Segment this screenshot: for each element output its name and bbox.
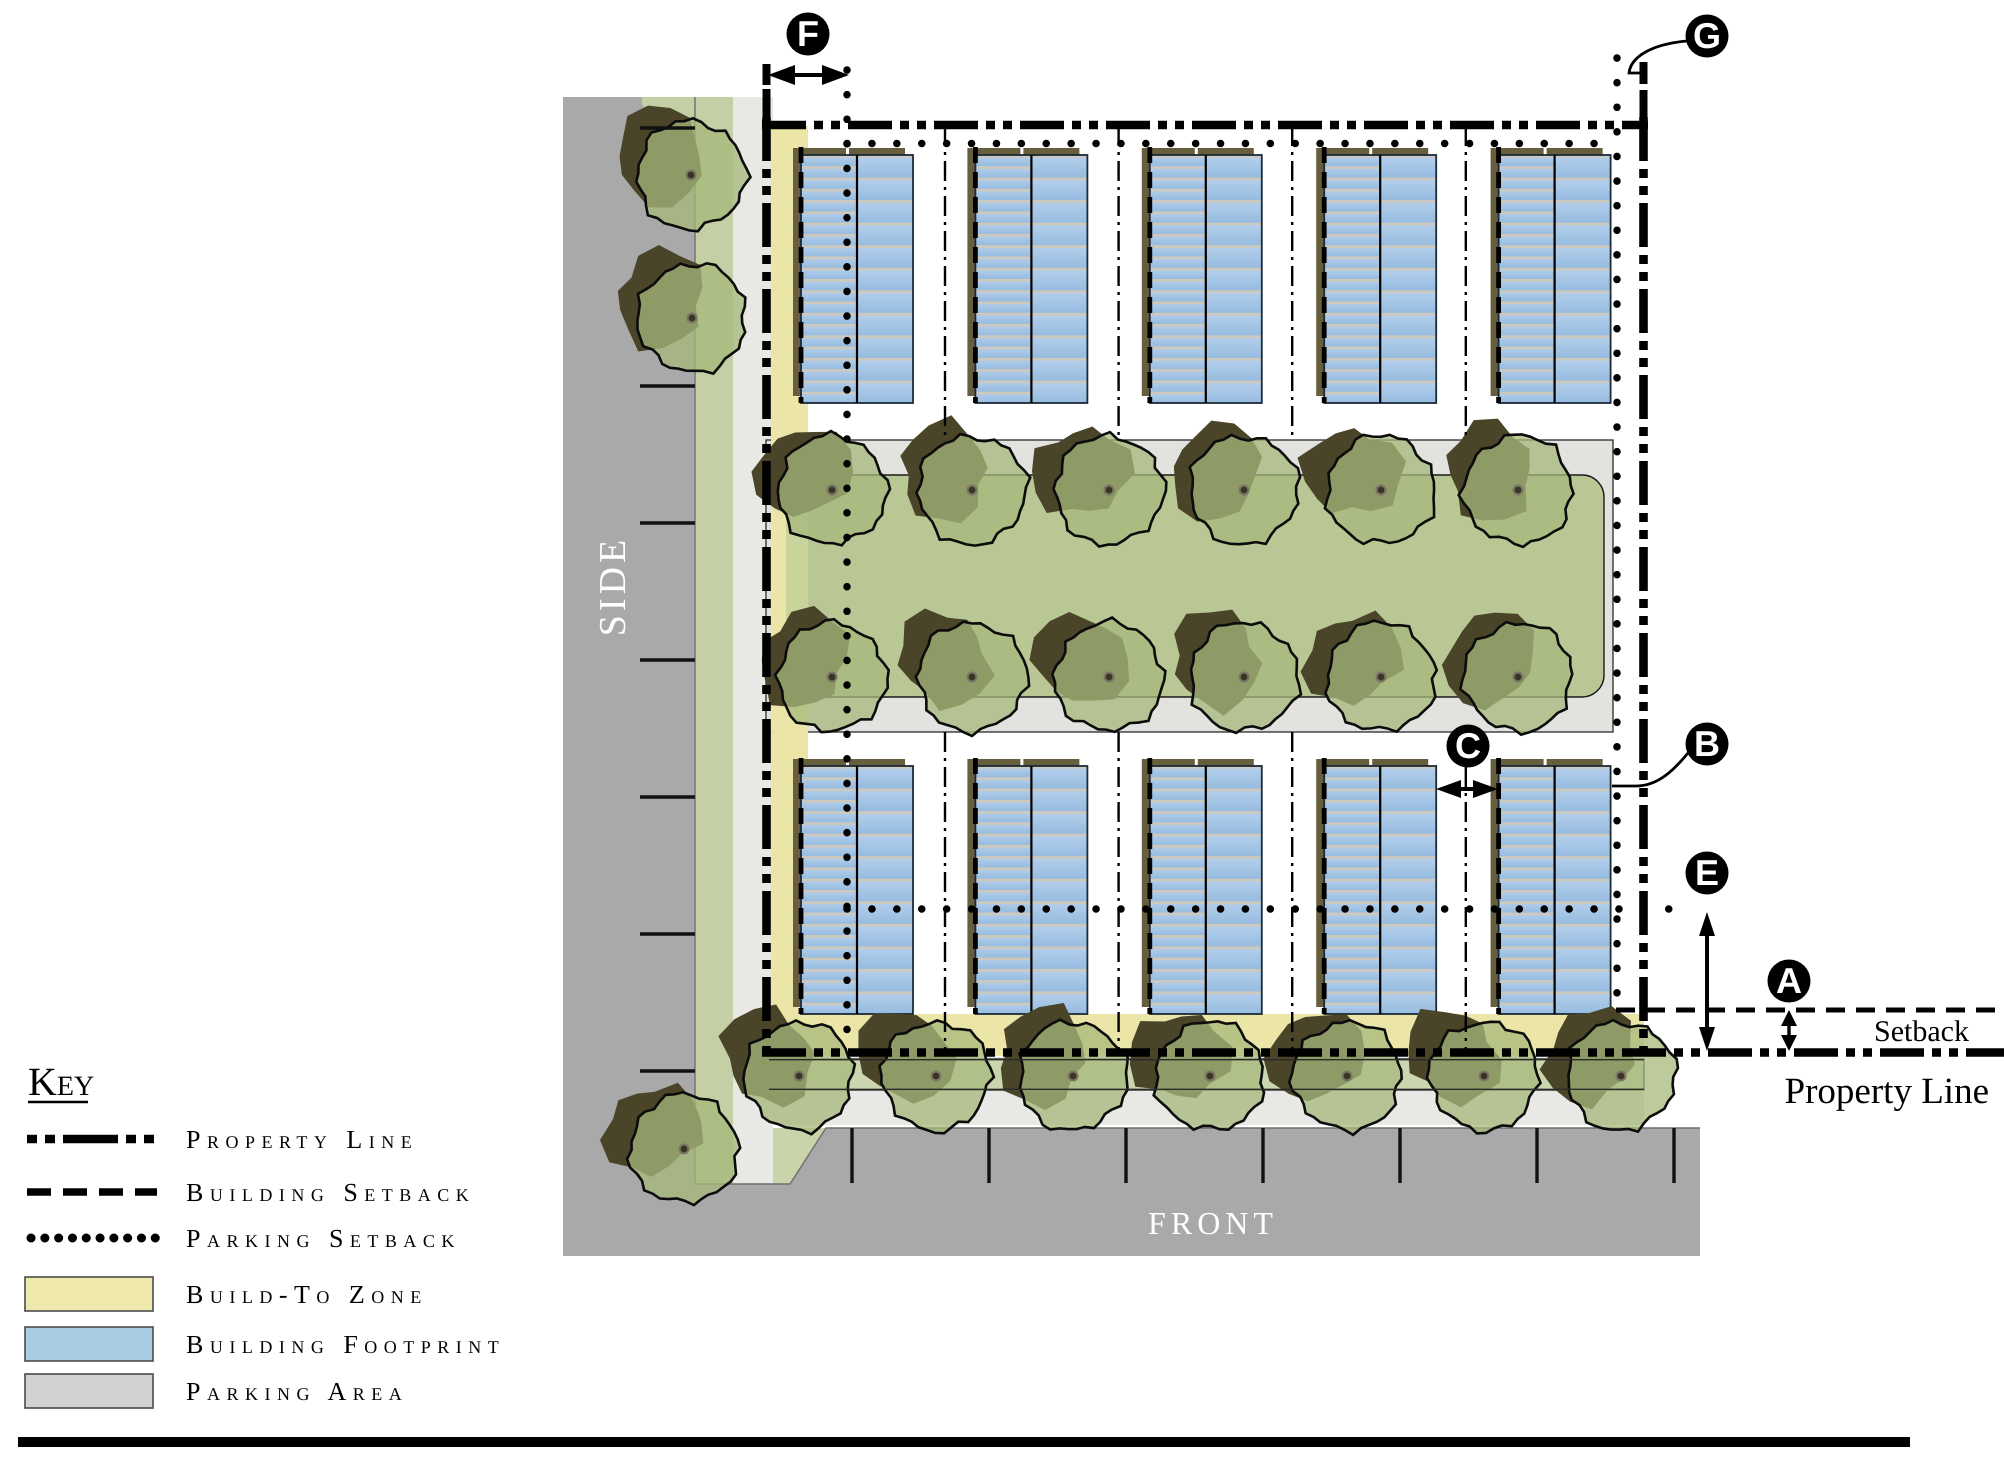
svg-text:F: F <box>797 13 819 54</box>
svg-text:Setback: Setback <box>1874 1015 1969 1048</box>
svg-text:C: C <box>1455 725 1481 766</box>
svg-text:Property Line: Property Line <box>1785 1071 1989 1112</box>
svg-text:Build-To Zone: Build-To Zone <box>186 1280 428 1309</box>
svg-text:Key: Key <box>28 1059 94 1104</box>
svg-text:Property Line: Property Line <box>186 1125 418 1154</box>
svg-text:Building Setback: Building Setback <box>186 1178 475 1207</box>
svg-text:G: G <box>1693 15 1721 56</box>
svg-text:FRONT: FRONT <box>1148 1205 1278 1241</box>
svg-text:Building Footprint: Building Footprint <box>186 1330 505 1359</box>
svg-text:E: E <box>1695 852 1719 893</box>
svg-text:A: A <box>1776 960 1802 1001</box>
svg-text:B: B <box>1694 723 1720 764</box>
svg-text:Parking Area: Parking Area <box>186 1377 408 1406</box>
svg-text:SIDE: SIDE <box>592 536 634 636</box>
svg-text:Parking Setback: Parking Setback <box>186 1224 461 1253</box>
